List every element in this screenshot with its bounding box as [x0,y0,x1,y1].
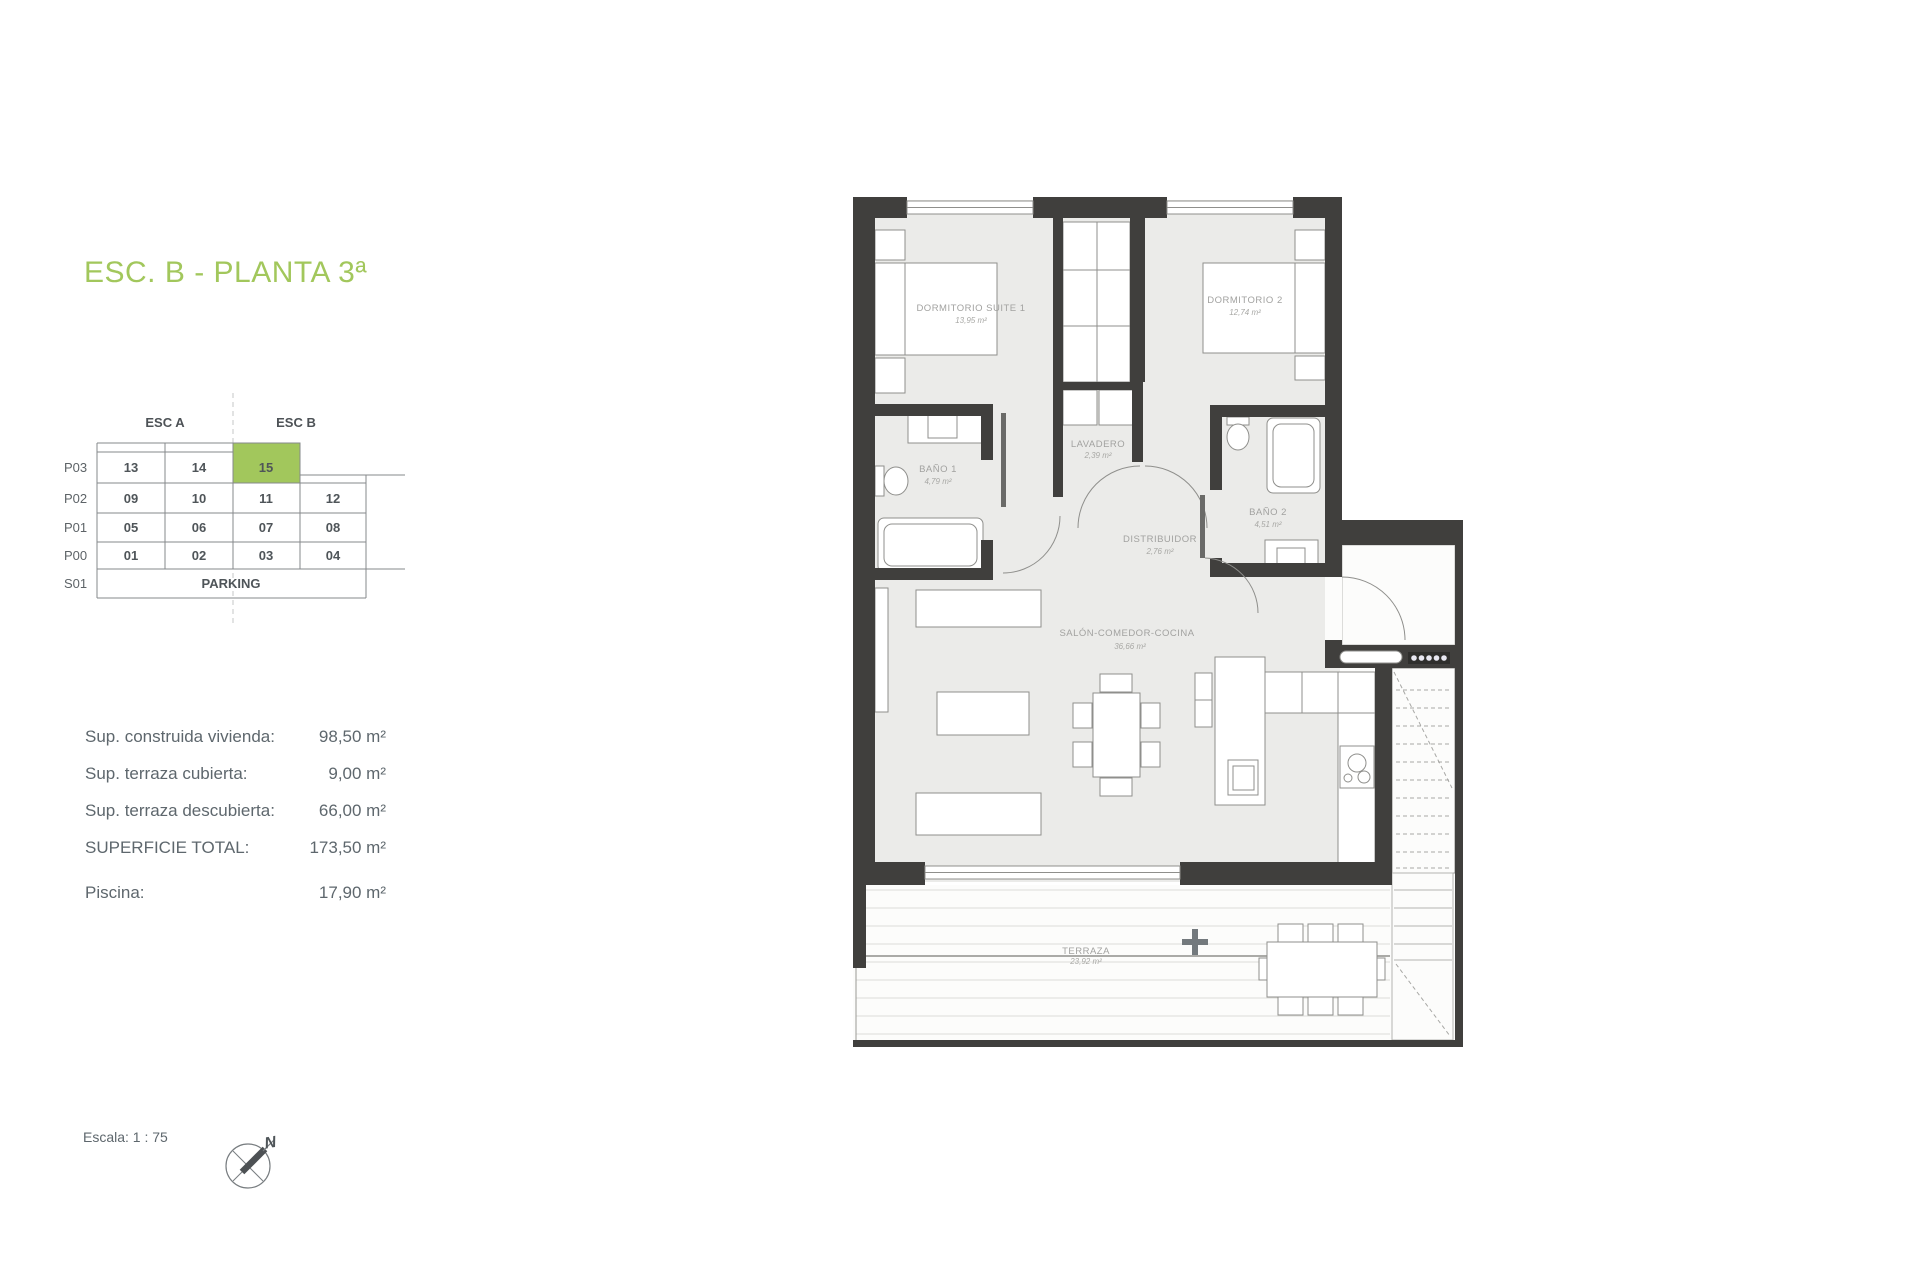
room-area-distribuidor: 2,76 m² [1145,547,1173,556]
room-label-distribuidor: DISTRIBUIDOR [1123,534,1197,545]
area-row-superficie-total: SUPERFICIE TOTAL: 173,50 m² [85,838,386,858]
area-value: 173,50 m² [309,838,386,858]
unit-cell-08[interactable]: 08 [326,520,340,535]
meter-box-icon [1408,652,1450,664]
area-value: 98,50 m² [319,727,386,747]
room-label-lavadero: LAVADERO [1071,439,1125,450]
room-area-terraza: 23,92 m² [1069,957,1102,966]
unit-cell-09[interactable]: 09 [124,491,138,506]
unit-cell-03[interactable]: 03 [259,548,273,563]
col-header-esc-b: ESC B [276,415,316,430]
unit-cell-15[interactable]: 15 [259,460,273,475]
unit-cell-10[interactable]: 10 [192,491,206,506]
area-row-terraza-cubierta: Sup. terraza cubierta: 9,00 m² [85,764,386,784]
compass-north-letter: N [263,1134,278,1153]
north-compass-icon: N [210,1118,300,1208]
area-label: Sup. construida vivienda: [85,727,275,747]
scale-label: Escala: 1 : 75 [83,1129,168,1145]
room-area-dormitorio-suite-1: 13,95 m² [955,316,987,325]
room-label-salon: SALÓN-COMEDOR-COCINA [1059,628,1194,639]
area-label: SUPERFICIE TOTAL: [85,838,249,858]
unit-cell-02[interactable]: 02 [192,548,206,563]
area-label: Piscina: [85,883,145,903]
room-area-salon: 36,66 m² [1114,642,1146,651]
unit-cell-11[interactable]: 11 [259,491,273,506]
room-area-banio-2: 4,51 m² [1254,520,1281,529]
row-label-p00: P00 [64,548,87,563]
area-row-construida: Sup. construida vivienda: 98,50 m² [85,727,386,747]
room-label-dormitorio-suite-1: DORMITORIO SUITE 1 [916,303,1025,314]
entry-mat [1340,651,1402,663]
area-label: Sup. terraza cubierta: [85,764,248,784]
entry-opening [1325,577,1342,640]
area-row-piscina: Piscina: 17,90 m² [85,883,386,903]
row-label-s01: S01 [64,576,87,591]
unit-cell-14[interactable]: 14 [192,460,207,475]
room-area-lavadero: 2,39 m² [1083,451,1111,460]
row-label-p03: P03 [64,460,87,475]
unit-cell-05[interactable]: 05 [124,520,138,535]
wardrobe-icon [1063,222,1130,382]
col-header-esc-a: ESC A [145,415,185,430]
unit-cell-12[interactable]: 12 [326,491,340,506]
room-area-banio-1: 4,79 m² [924,477,951,486]
unit-cell-01[interactable]: 01 [124,548,138,563]
parking-cell: PARKING [202,576,261,591]
unit-cell-06[interactable]: 06 [192,520,206,535]
row-label-p01: P01 [64,520,87,535]
unit-cell-04[interactable]: 04 [326,548,341,563]
area-value: 66,00 m² [319,801,386,821]
row-label-p02: P02 [64,491,87,506]
area-value: 17,90 m² [319,883,386,903]
page-title: ESC. B - PLANTA 3ª [84,256,367,290]
room-label-banio-2: BAÑO 2 [1249,507,1287,518]
floor-plan: DORMITORIO SUITE 1 13,95 m² DORMITORIO 2… [845,185,1470,1055]
area-row-terraza-descubierta: Sup. terraza descubierta: 66,00 m² [85,801,386,821]
room-label-dormitorio-2: DORMITORIO 2 [1207,295,1283,306]
room-area-dormitorio-2: 12,74 m² [1229,308,1261,317]
unit-cell-07[interactable]: 07 [259,520,273,535]
room-label-banio-1: BAÑO 1 [919,464,957,475]
area-value: 9,00 m² [328,764,386,784]
room-label-terraza: TERRAZA [1062,946,1110,957]
building-unit-table: ESC A ESC B P03 P02 P01 P00 S01 13 14 15… [50,385,430,640]
unit-cell-13[interactable]: 13 [124,460,138,475]
area-label: Sup. terraza descubierta: [85,801,275,821]
